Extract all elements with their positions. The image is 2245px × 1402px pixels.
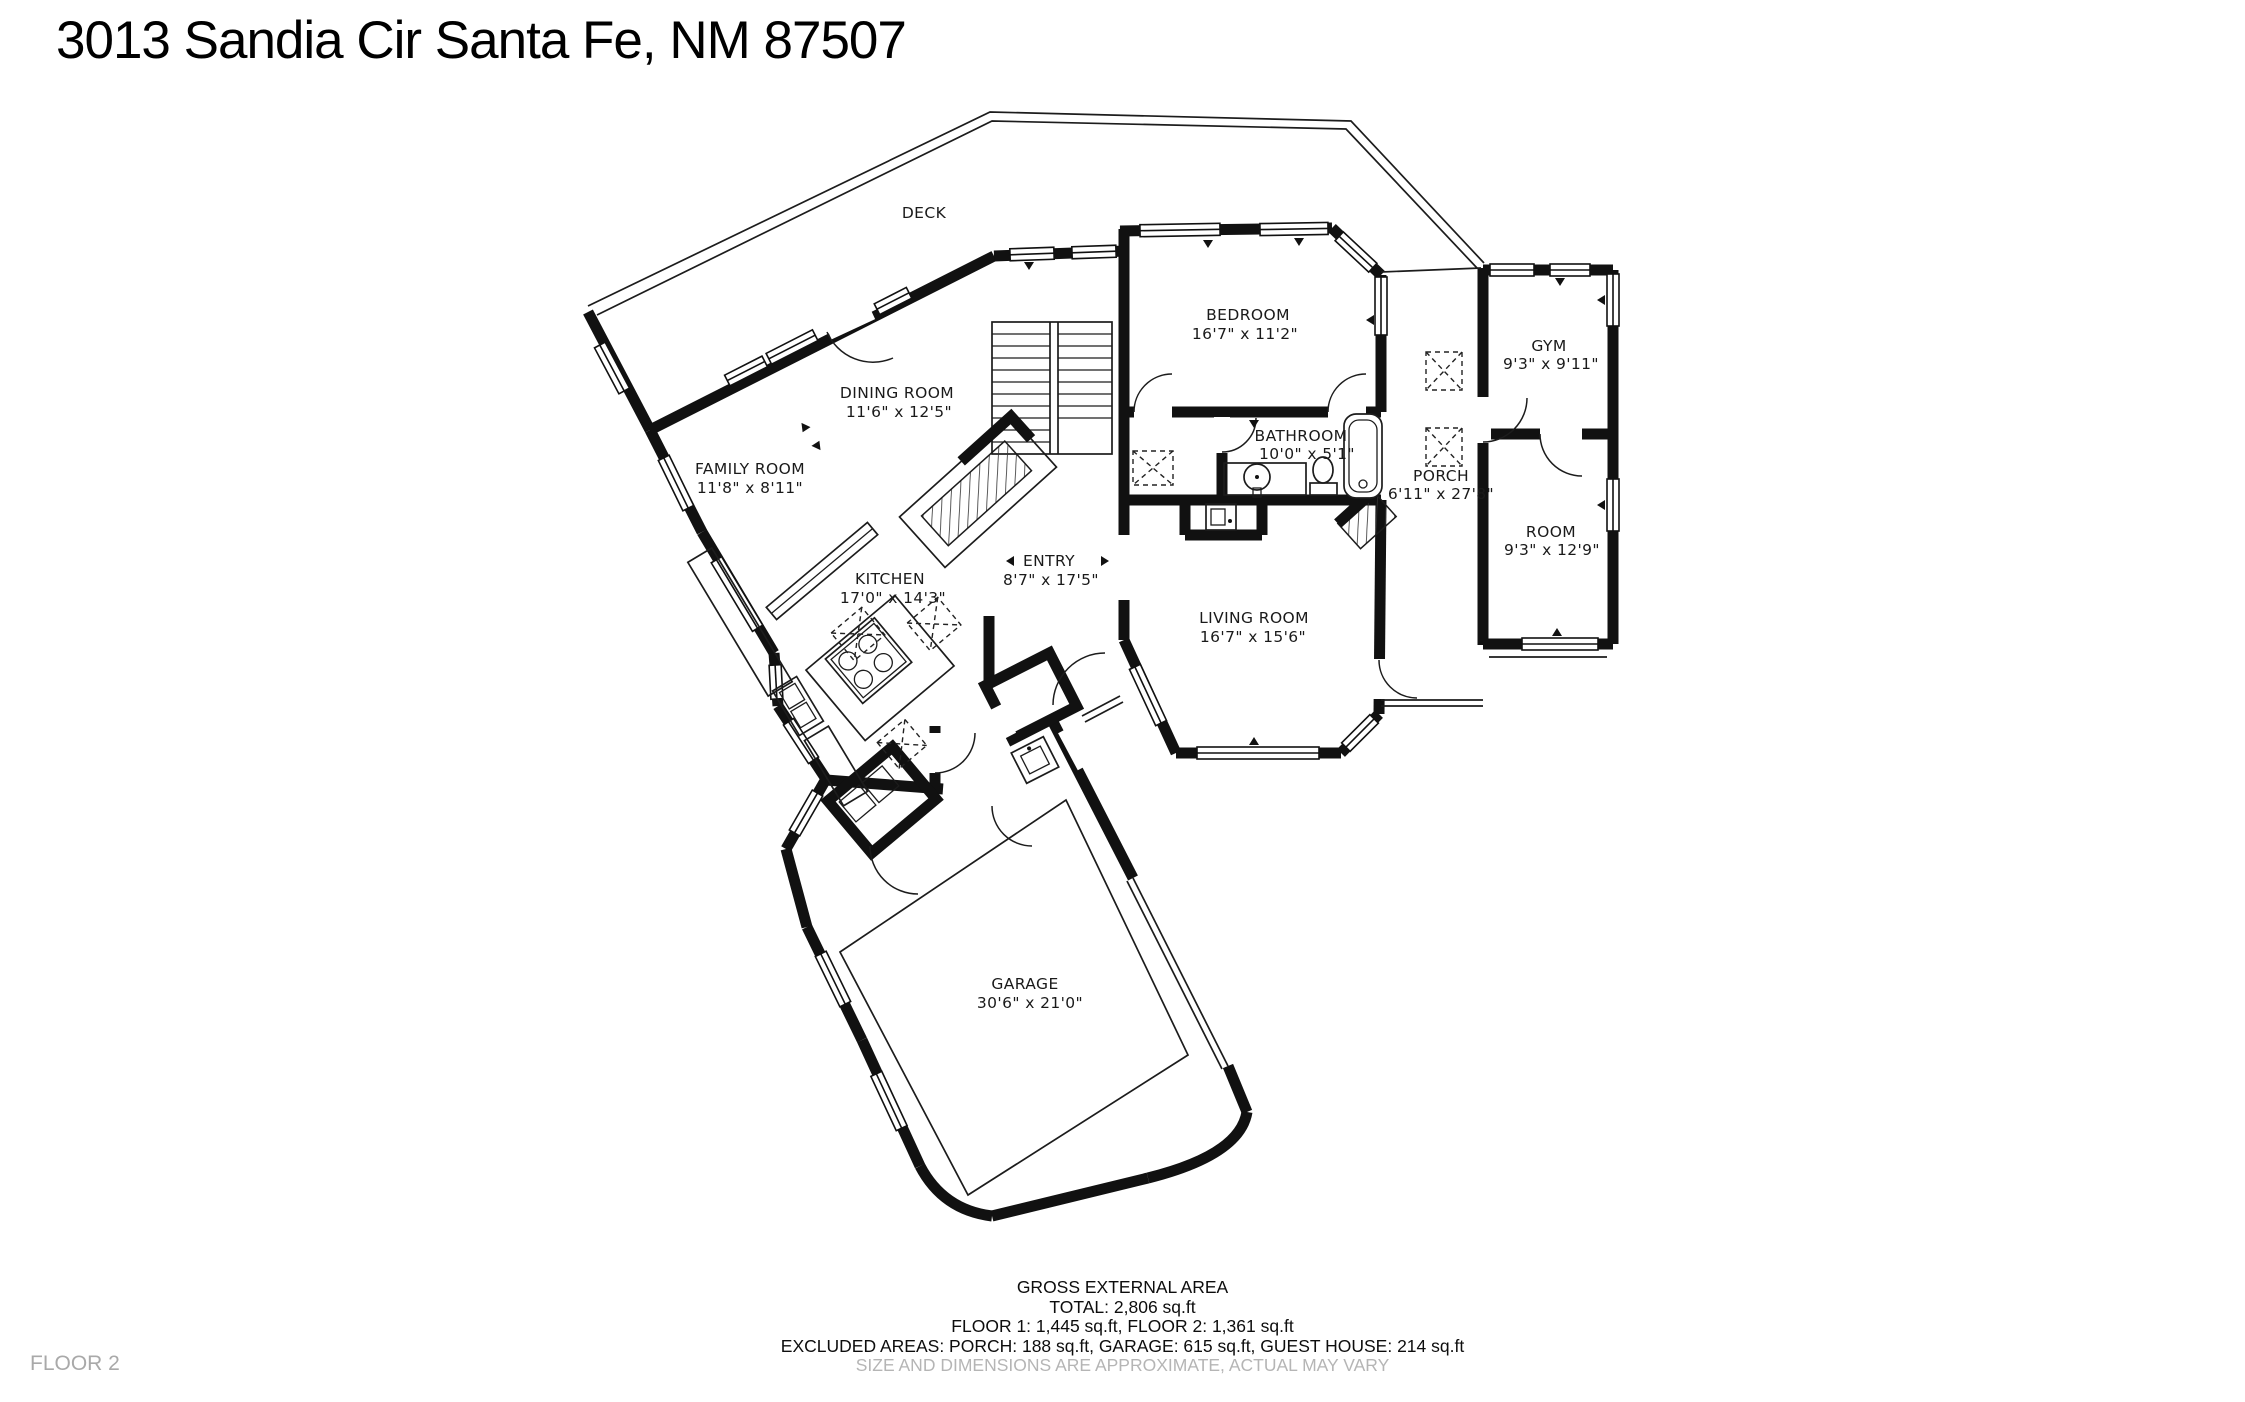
label-bedroom: BEDROOM <box>1206 306 1290 324</box>
dims-entry: 8'7" x 17'5" <box>1003 571 1099 589</box>
label-bathroom: BATHROOM <box>1255 427 1348 445</box>
washer-dryer <box>839 766 899 822</box>
bathroom-vanity <box>1224 463 1306 497</box>
label-living-room: LIVING ROOM <box>1199 609 1309 627</box>
label-kitchen: KITCHEN <box>855 570 925 588</box>
area-summary-disclaimer: SIZE AND DIMENSIONS ARE APPROXIMATE, ACT… <box>0 1356 2245 1376</box>
floor-label: FLOOR 2 <box>30 1352 120 1376</box>
dims-kitchen: 17'0" x 14'3" <box>840 589 946 607</box>
dims-bedroom: 16'7" x 11'2" <box>1192 325 1298 343</box>
fireplace-dining <box>900 417 1057 568</box>
area-summary-floors: FLOOR 1: 1,445 sq.ft, FLOOR 2: 1,361 sq.… <box>0 1317 2245 1337</box>
staircase <box>992 322 1112 454</box>
area-summary-excluded: EXCLUDED AREAS: PORCH: 188 sq.ft, GARAGE… <box>0 1337 2245 1357</box>
deck-railing <box>588 112 1484 315</box>
label-deck: DECK <box>902 204 947 222</box>
powder-sink <box>1011 737 1059 784</box>
dims-bathroom: 10'0" x 5'1" <box>1259 445 1355 463</box>
dims-room: 9'3" x 12'9" <box>1504 541 1600 559</box>
dims-living-room: 16'7" x 15'6" <box>1200 628 1306 646</box>
floor-plan: DECK FAMILY ROOM 11'8" x 8'11" DINING RO… <box>0 0 2245 1402</box>
label-dining-room: DINING ROOM <box>840 384 954 402</box>
label-gym: GYM <box>1531 337 1566 355</box>
area-summary-heading: GROSS EXTERNAL AREA <box>0 1278 2245 1298</box>
label-porch: PORCH <box>1413 467 1469 485</box>
label-garage: GARAGE <box>991 975 1058 993</box>
floor-plan-svg: DECK FAMILY ROOM 11'8" x 8'11" DINING RO… <box>0 0 2245 1402</box>
area-summary-total: TOTAL: 2,806 sq.ft <box>0 1298 2245 1318</box>
label-entry: ENTRY <box>1023 552 1075 570</box>
kitchen-island-stove <box>806 595 954 740</box>
dims-porch: 6'11" x 27'8" <box>1388 485 1494 503</box>
windows-layer <box>594 222 1619 1130</box>
laundry-sink <box>1206 504 1236 530</box>
dims-family-room: 11'8" x 8'11" <box>697 479 803 497</box>
label-family-room: FAMILY ROOM <box>695 460 805 478</box>
area-summary: GROSS EXTERNAL AREA TOTAL: 2,806 sq.ft F… <box>0 1278 2245 1376</box>
dims-garage: 30'6" x 21'0" <box>977 994 1083 1012</box>
dims-gym: 9'3" x 9'11" <box>1503 355 1599 373</box>
label-room: ROOM <box>1526 523 1576 541</box>
dims-dining-room: 11'6" x 12'5" <box>846 403 952 421</box>
